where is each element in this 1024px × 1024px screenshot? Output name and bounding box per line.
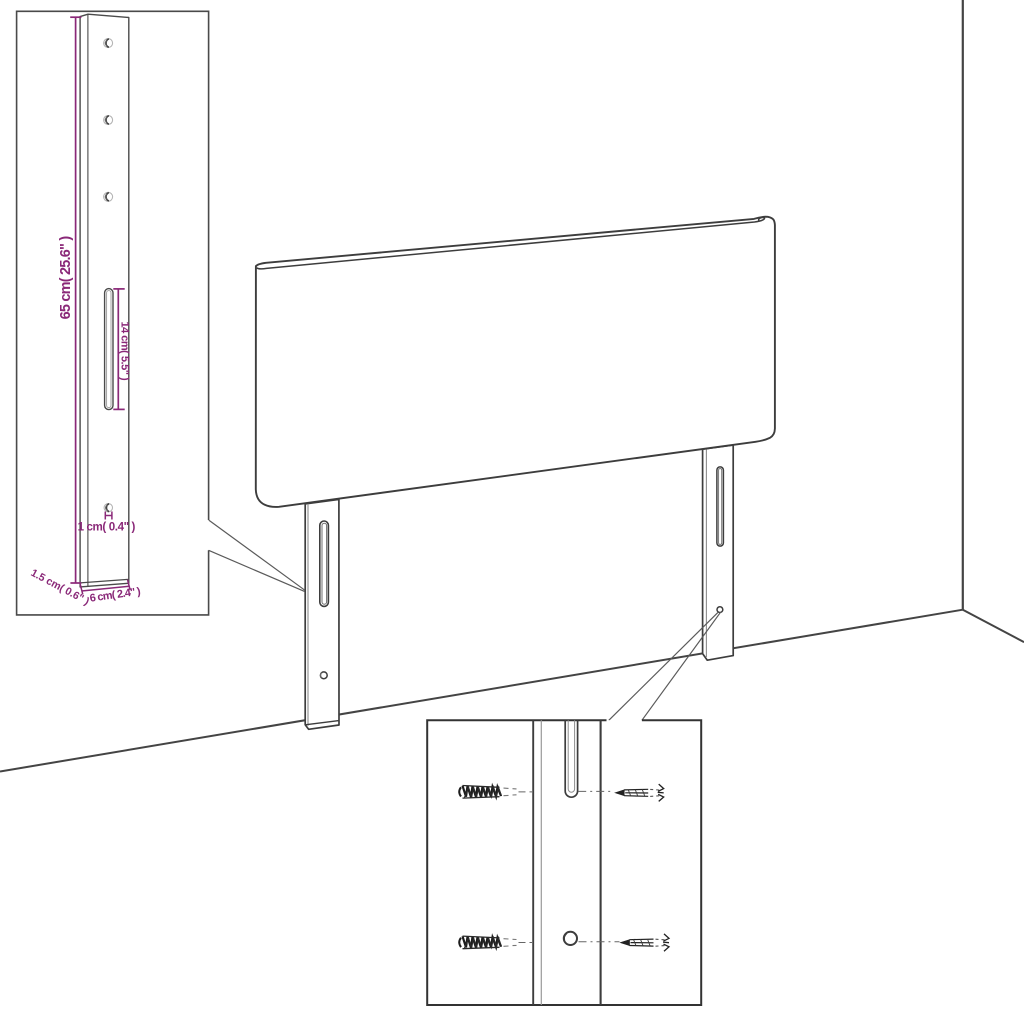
svg-text:14 cm( 5.5" ): 14 cm( 5.5" ): [118, 321, 130, 380]
svg-text:65 cm( 25.6" ): 65 cm( 25.6" ): [58, 236, 74, 320]
svg-text:1 cm( 0.4" ): 1 cm( 0.4" ): [78, 521, 136, 534]
